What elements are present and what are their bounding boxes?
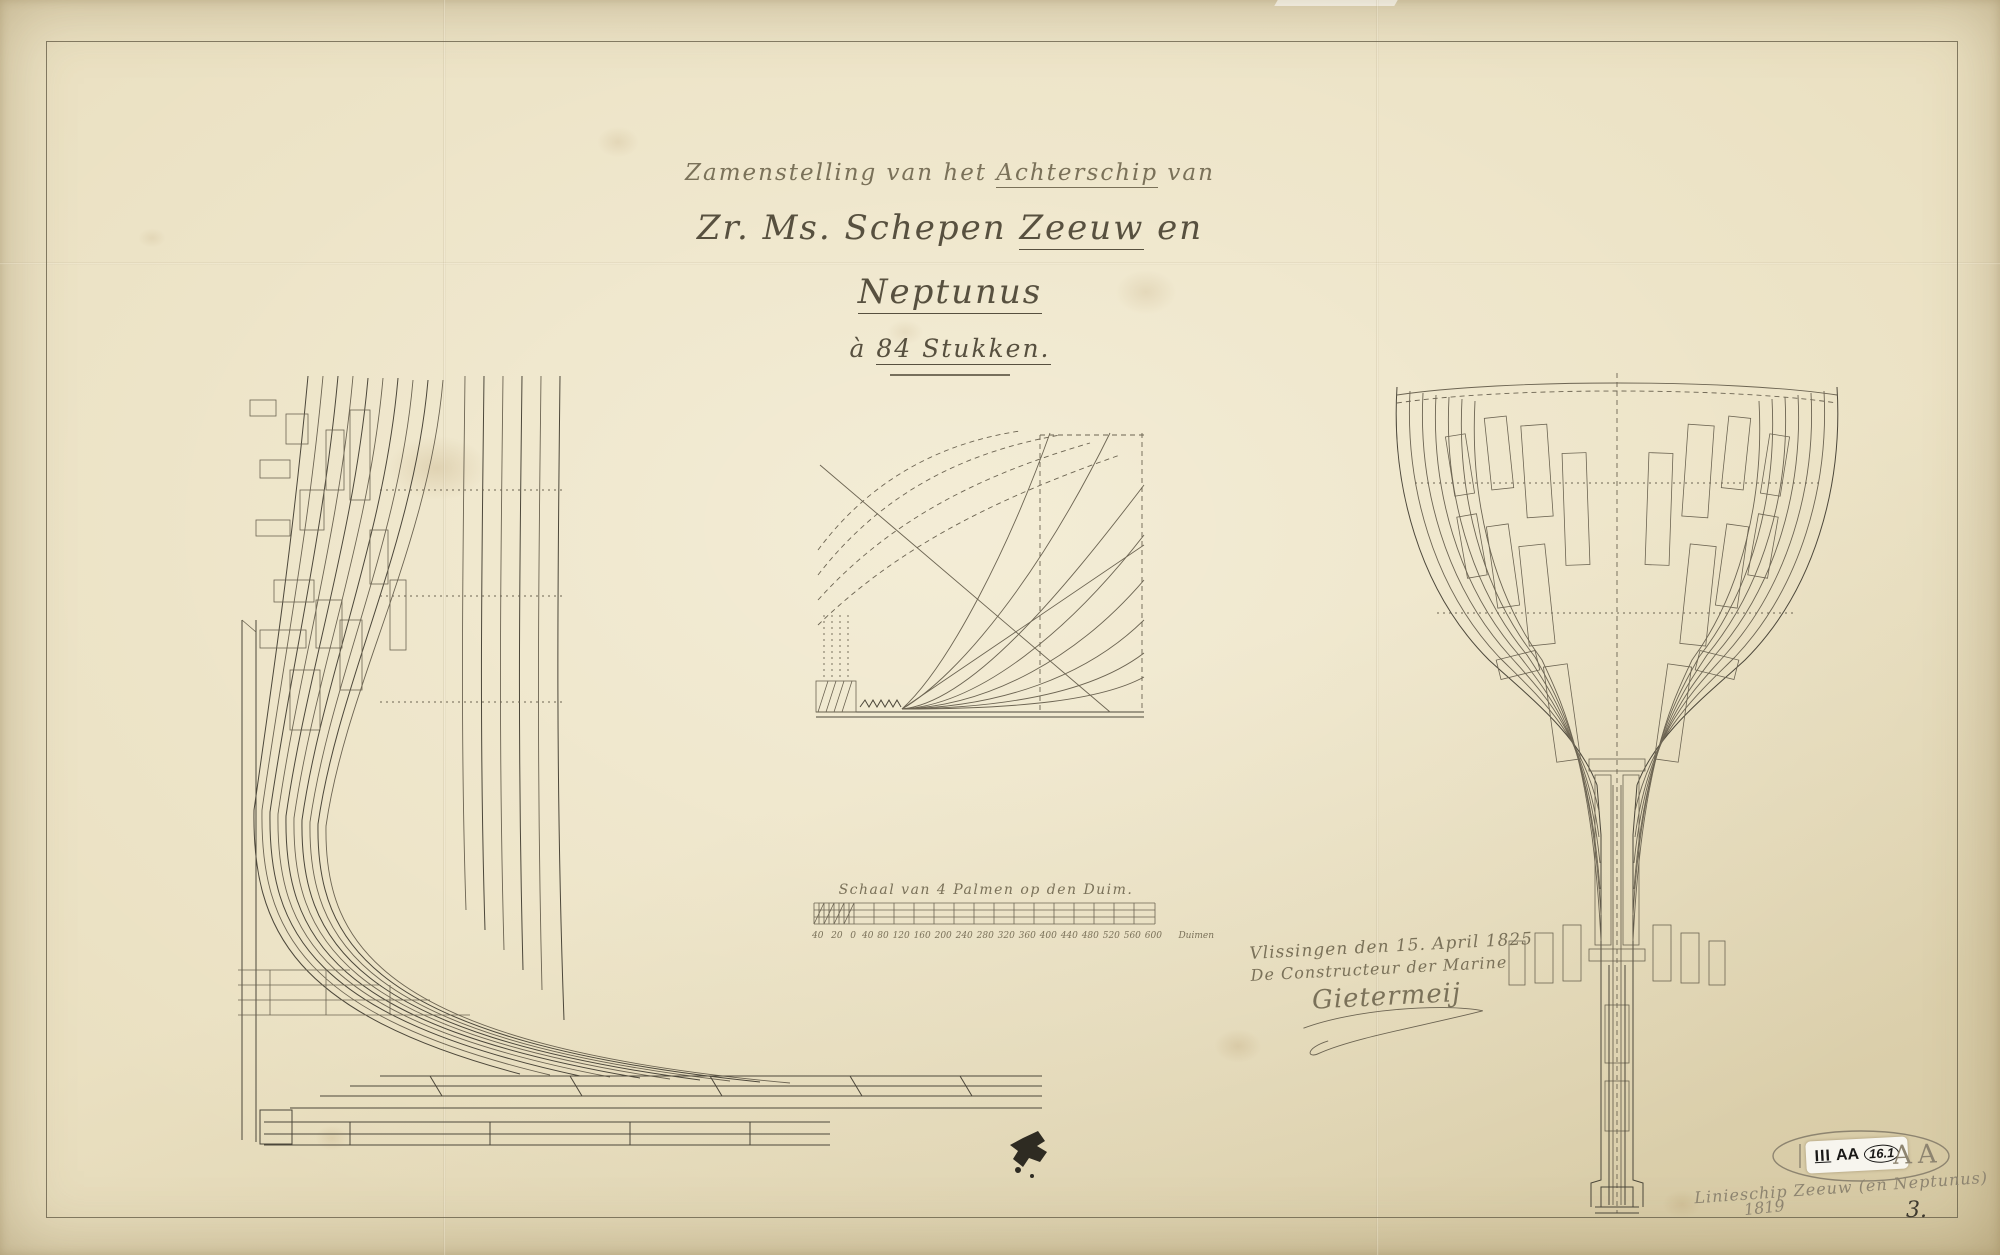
scale-tick-labels: 40200 4080120160200240280320360400440480… [810,931,1162,941]
tick-label: 240 [956,931,973,941]
tick-label: 40 [862,931,873,941]
scale-unit-label: Duimen [1178,931,1214,941]
tick-label: 20 [831,931,842,941]
scale-bar [810,900,1162,926]
tick-label: 480 [1082,931,1099,941]
stern-lines-diagram [810,425,1150,725]
tick-label: 200 [935,931,952,941]
tick-label: 360 [1019,931,1036,941]
tick-label: 160 [914,931,931,941]
tick-label: 0 [850,931,856,941]
title-line-3: à 84 Stukken. [640,325,1260,377]
title-line2-pre: Zr. Ms. Schepen [697,208,1020,248]
title-ship-name-neptunus: Neptunus [858,272,1042,314]
tick-label: 400 [1040,931,1057,941]
tick-label: 560 [1124,931,1141,941]
scale-bar-block: Schaal van 4 Palmen op den Duim. 40200 4… [810,882,1162,941]
title-guns-count: 84 Stukken. [876,334,1050,365]
stern-body-plan-drawing [1385,365,1850,1220]
tick-label: 80 [877,931,888,941]
tick-label: 280 [977,931,994,941]
stamp-series: III [1814,1147,1831,1166]
title-line1-underlined: Achterschip [996,160,1158,188]
stamp-letters: AA [1836,1146,1860,1165]
title-ship-name-zeeuw: Zeeuw [1019,208,1144,250]
tick-label: 120 [893,931,910,941]
title-line-2: Zr. Ms. Schepen Zeeuw en Neptunus [640,196,1260,325]
tick-label: 600 [1145,931,1162,941]
sheet-number: 3. [1906,1198,1927,1223]
title-block: Zamenstelling van het Achterschip van Zr… [640,152,1260,376]
title-line-1: Zamenstelling van het Achterschip van [640,152,1260,196]
title-line1-post: van [1158,160,1215,186]
scanned-ship-plan-sheet: Zamenstelling van het Achterschip van Zr… [0,0,2000,1255]
scale-caption: Schaal van 4 Palmen op den Duim. [810,882,1162,898]
pencil-letters: AA [1892,1139,1943,1171]
title-line2-mid: en [1144,208,1203,248]
scale-left-labels: 40200 [812,931,856,941]
paper-seam [1274,0,1397,6]
title-line1-pre: Zamenstelling van het [685,160,996,186]
tick-label: 320 [998,931,1015,941]
tick-label: 40 [812,931,823,941]
tick-label: 440 [1061,931,1078,941]
title-line3-pre: à [849,334,876,363]
tick-label: 520 [1103,931,1120,941]
